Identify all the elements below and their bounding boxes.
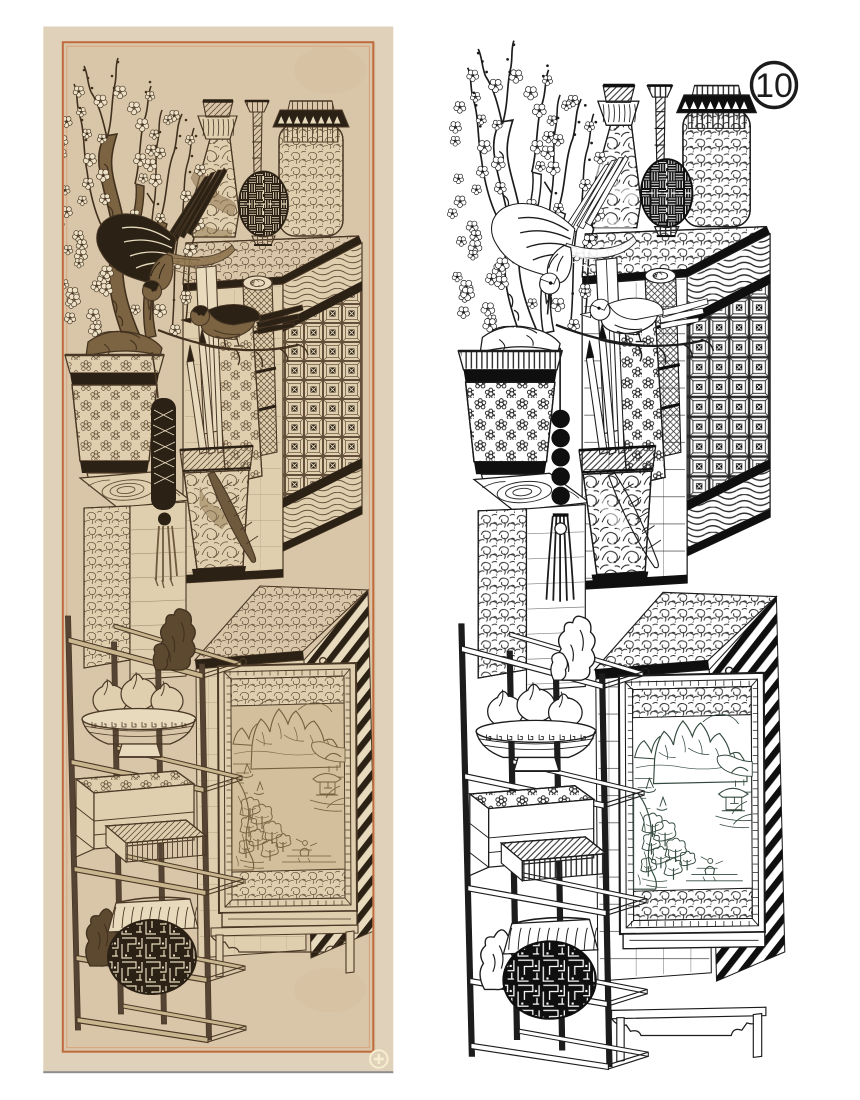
svg-text:10: 10 [755,67,793,105]
